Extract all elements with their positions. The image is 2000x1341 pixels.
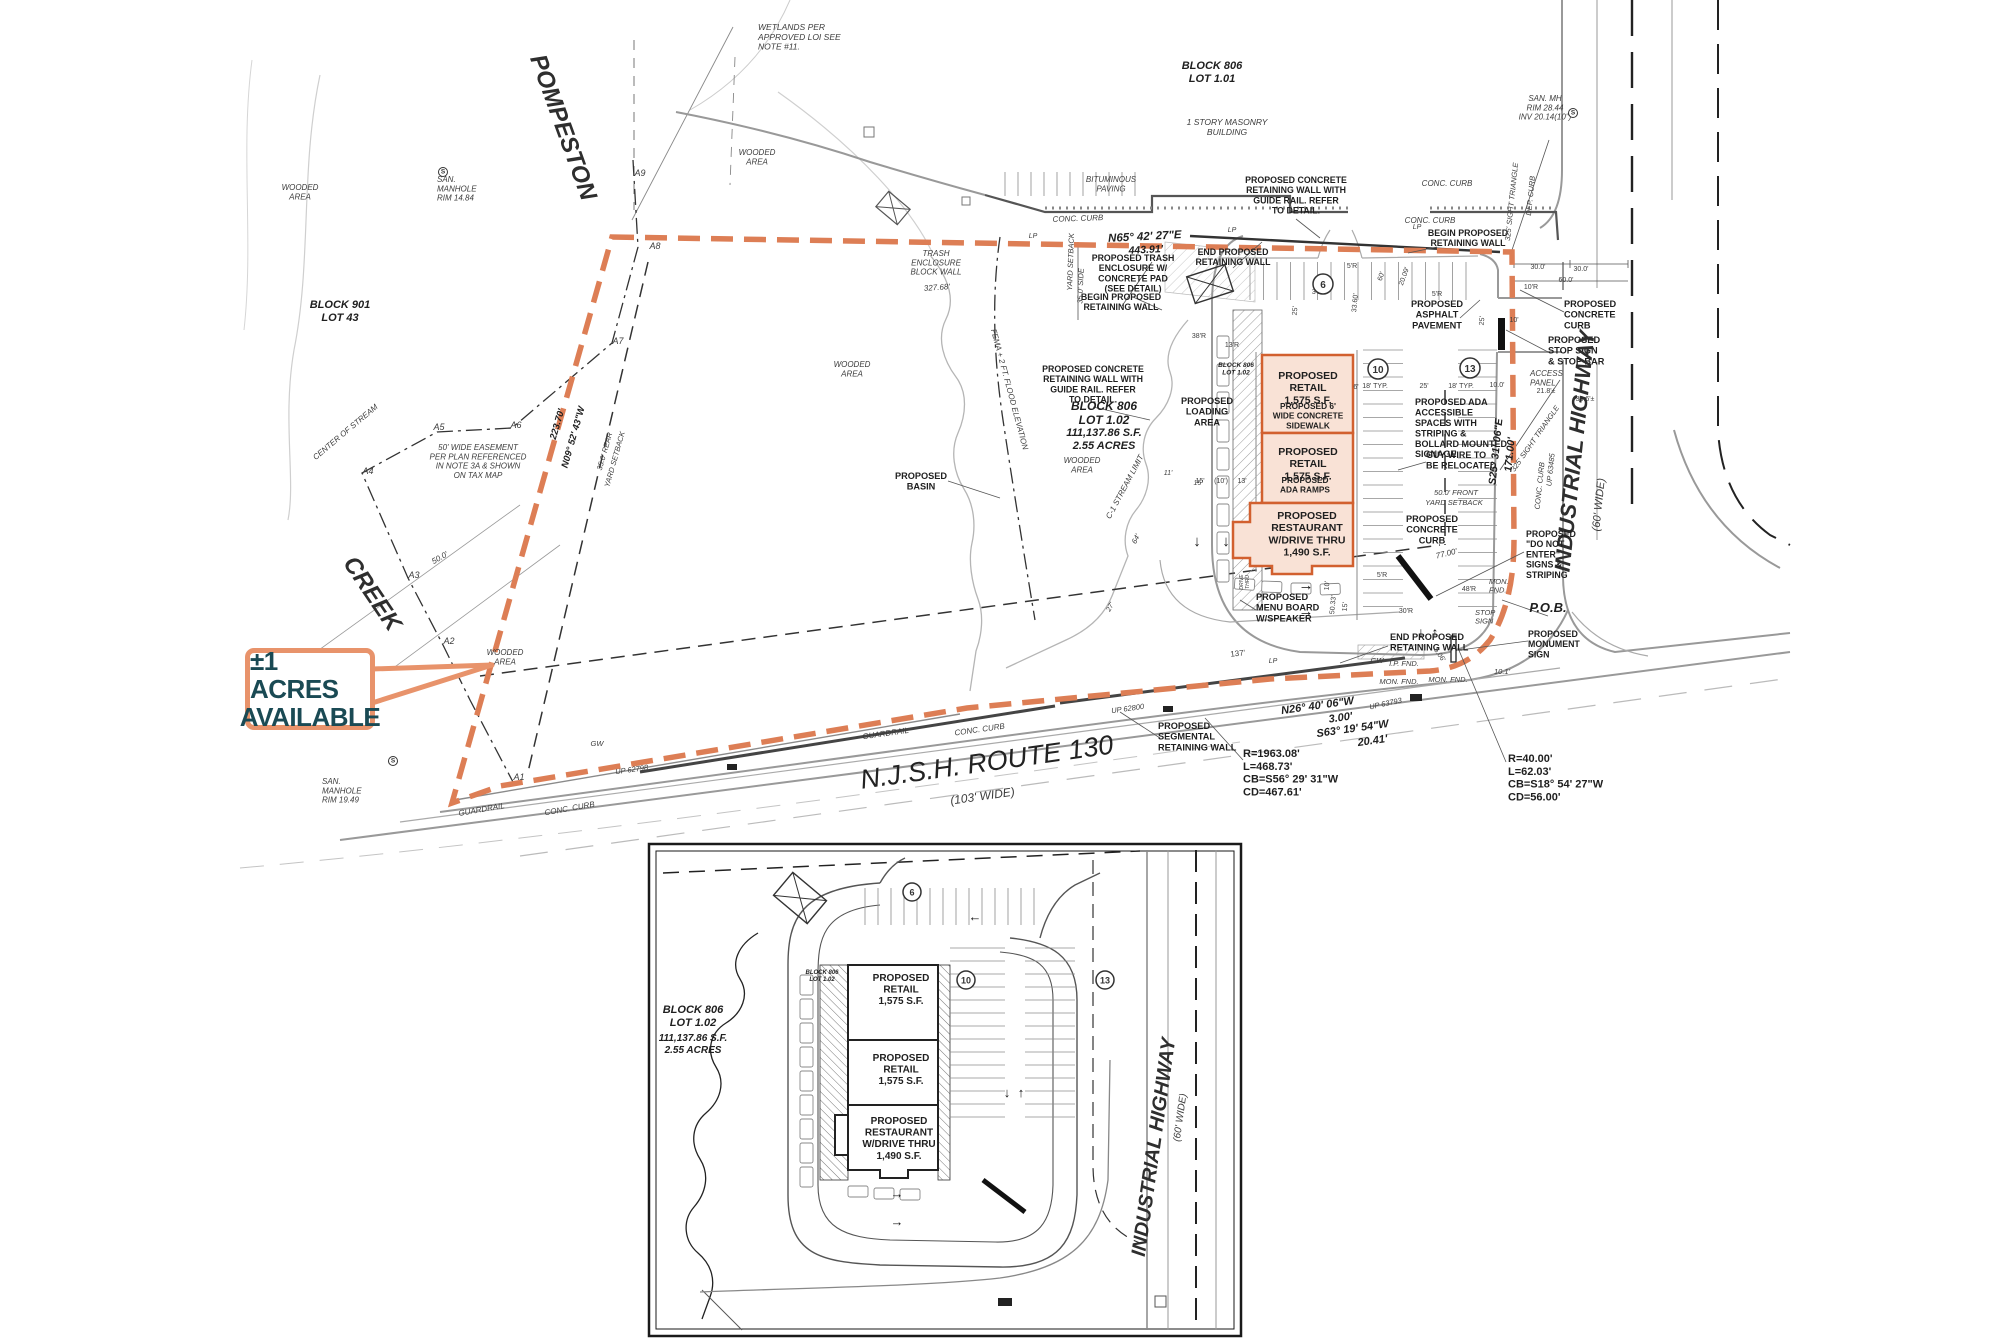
plan-label: MON.FND.	[1489, 577, 1509, 595]
plan-label: BEGIN PROPOSEDRETAINING WALL	[1428, 228, 1508, 248]
flow-arrow: →	[1299, 603, 1314, 620]
flow-arrow: →	[891, 1214, 904, 1229]
plan-label: 50.0' FRONT	[1434, 488, 1479, 497]
plan-label: 77.00'	[1435, 546, 1459, 560]
curve-data-corner: R=40.00'L=62.03'CB=S18° 54' 27"WCD=56.00…	[1508, 753, 1604, 803]
car-stamp	[800, 1143, 813, 1163]
plan-label: 10.1'	[1494, 667, 1511, 676]
flow-arrow: ←	[969, 909, 982, 924]
flow-arrow: ↑	[1432, 624, 1439, 640]
plan-label: (10')	[1214, 478, 1228, 485]
plan-label: 223.70'	[548, 407, 568, 442]
acres-callout-line1: ±1 ACRES	[250, 647, 370, 703]
plan-label: 15'	[1342, 602, 1350, 612]
plan-label: A3	[407, 570, 419, 580]
plan-label: A5	[432, 422, 445, 432]
pob-label: P.O.B.	[1529, 600, 1566, 615]
plan-label: 18' TYP.	[1448, 383, 1474, 390]
plan-label: CENTER OF STREAM	[311, 402, 380, 462]
plan-label: SAN. MHRIM 28.44INV 20.14(10")	[1519, 94, 1572, 122]
plan-label: 60.0'	[1559, 277, 1574, 284]
plan-label: PROPOSEDCONCRETECURB	[1564, 299, 1616, 330]
plan-label: C-1 STREAM LIMIT	[1104, 452, 1146, 520]
plan-label: 25'	[1292, 306, 1300, 316]
plan-label: 10'	[1324, 581, 1332, 591]
plan-label: WOODEDAREA	[739, 148, 776, 166]
svg-text:6: 6	[909, 887, 914, 897]
car-stamp	[1262, 581, 1282, 593]
keyed-circle-10: 10	[1368, 359, 1388, 379]
plan-label: A1	[512, 772, 524, 782]
plan-label: 18' TYP.	[1362, 383, 1388, 390]
plan-label: YARD SETBACK	[1425, 498, 1484, 507]
plan-label: 50' WIDE EASEMENTPER PLAN REFERENCEDIN N…	[430, 443, 527, 480]
plan-label: PROPOSEDADA RAMPS	[1280, 475, 1330, 495]
plan-label: 15'	[1195, 478, 1204, 485]
keyed-circle-13: 13	[1460, 358, 1480, 378]
flow-arrow: ↓	[1418, 624, 1425, 640]
plan-label: BITUMINOUSPAVING	[1086, 175, 1137, 193]
car-stamp	[1217, 504, 1229, 526]
plan-label: 10.0'	[1490, 382, 1505, 389]
plan-label: BLOCK 806LOT 1.02	[1218, 362, 1254, 377]
plan-label: 10'R	[1524, 284, 1538, 291]
plan-label: CONC. CURB	[1422, 179, 1473, 188]
svg-text:13: 13	[1100, 975, 1110, 985]
plan-label: 2.55 ACRES	[1072, 440, 1136, 452]
plan-label: SAN.MANHOLERIM 19.49	[322, 777, 362, 805]
plan-label: A9	[633, 168, 645, 178]
block-901-lot-43-label: BLOCK 901LOT 43	[310, 299, 371, 324]
plan-label: PROPOSED TRASHENCLOSURE W/CONCRETE PAD(S…	[1092, 253, 1175, 294]
plan-label: UP 63793	[1368, 696, 1403, 712]
plan-label: YARD SETBACK	[1065, 232, 1076, 291]
plan-label: DRIVETHRU	[1239, 574, 1251, 590]
plan-label: WETLANDS PERAPPROVED LOI SEENOTE #11.	[757, 22, 841, 52]
plan-label: 20.41'	[1356, 733, 1389, 749]
plan-label: 33.60'	[1351, 293, 1360, 312]
plan-label: WOODEDAREA	[282, 183, 319, 201]
svg-text:S: S	[441, 169, 446, 176]
plan-label: PROPOSEDASPHALTPAVEMENT	[1411, 299, 1463, 330]
plan-label: STOPSIGN	[1475, 608, 1495, 626]
flow-arrow: ↓	[1004, 1085, 1011, 1100]
plan-label: 25'	[1419, 383, 1428, 390]
keyed-circle-S: S	[389, 757, 398, 766]
plan-label: 30.0'	[1531, 264, 1546, 271]
plan-label: 25'	[1479, 316, 1487, 326]
car-stamp	[1217, 560, 1229, 582]
plan-label: A8	[648, 241, 660, 251]
plan-label: PROPOSED CONCRETERETAINING WALL WITHGUID…	[1245, 175, 1347, 216]
site-plan-page: WETLANDS PERAPPROVED LOI SEENOTE #11.POM…	[0, 0, 2000, 1341]
plan-label: 111,137.86 S.F.	[659, 1033, 728, 1044]
bearing-s25: S25° 31' 06"E	[1487, 417, 1506, 485]
flow-arrow: ↓	[1222, 533, 1230, 550]
car-stamp	[800, 1023, 813, 1043]
svg-text:6: 6	[1320, 280, 1326, 291]
retaining-walls	[640, 236, 1500, 772]
plan-label: GUARDRAIL	[862, 726, 909, 741]
creek-label: CREEK	[338, 551, 408, 637]
plan-label: 137'	[1230, 648, 1246, 659]
car-stamp	[800, 999, 813, 1019]
plan-label: FEMA + 2 FT. FLOOD ELEVATION	[989, 328, 1030, 451]
plan-label: (103' WIDE)	[949, 785, 1015, 808]
pompeston-label: POMPESTON	[524, 51, 602, 205]
flow-arrow: ↓	[1193, 533, 1201, 550]
car-stamp	[800, 1167, 813, 1187]
block-806-lot-101-label: BLOCK 806LOT 1.01	[1182, 60, 1243, 85]
plan-label: 5'R	[1347, 263, 1357, 270]
acres-callout-pointer	[372, 665, 492, 703]
plan-label: GW	[1371, 656, 1385, 665]
plan-label: A4	[361, 466, 373, 476]
keyed-circle-10: 10	[957, 971, 975, 989]
svg-text:S: S	[1571, 110, 1576, 117]
plan-label: WOODEDAREA	[834, 360, 871, 378]
plan-label: CONC. CURB	[954, 721, 1006, 737]
plan-label: 38'R	[1192, 333, 1206, 340]
plan-label: WOODEDAREA	[1064, 456, 1101, 474]
car-stamp	[848, 1186, 868, 1197]
plan-label: A6	[509, 420, 521, 430]
plan-label: 13'	[1237, 478, 1246, 485]
plan-label: GUY WIRE TOBE RELOCATED	[1426, 450, 1497, 470]
car-stamp	[800, 1119, 813, 1139]
plan-label: GW	[591, 739, 605, 748]
plan-label: (60' WIDE)	[1590, 477, 1608, 532]
car-stamp	[1217, 448, 1229, 470]
plan-label: GUARDRAIL	[458, 801, 506, 818]
plan-label: 20.09'	[1398, 266, 1411, 286]
plan-label: LP	[1269, 658, 1278, 665]
plan-label: 64'	[1130, 532, 1143, 545]
block-806-lot-102-label: BLOCK 806LOT 1.02	[1071, 399, 1137, 427]
plan-label: A2	[442, 636, 454, 646]
plan-label: 1 STORY MASONRYBUILDING	[1187, 117, 1269, 137]
plan-label: 325' SIGHT TRIANGLE	[1503, 161, 1520, 241]
plan-label: 35.0' SIDE	[1075, 267, 1085, 304]
plan-label: END PROPOSEDRETAINING WALL	[1195, 247, 1271, 267]
plan-label: 48'R	[1462, 586, 1476, 593]
plan-label: 50.0'	[430, 549, 450, 566]
inset-block-806-lot-102-label: BLOCK 806LOT 1.02	[663, 1004, 724, 1029]
keyed-circle-S: S	[439, 168, 448, 177]
svg-text:13: 13	[1464, 364, 1476, 375]
plan-label: I.P. FND.	[1389, 659, 1419, 668]
plan-label: UP 62800	[1111, 702, 1146, 716]
keyed-circle-S: S	[1569, 109, 1578, 118]
car-stamp	[800, 1047, 813, 1067]
plan-label: LP	[1228, 227, 1237, 234]
plan-label: 21.8'±	[1537, 388, 1556, 395]
plan-label: 111,137.86 S.F.	[1066, 427, 1141, 439]
curve-data-route130: R=1963.08'L=468.73'CB=S56° 29' 31"WCD=46…	[1243, 748, 1339, 798]
plan-label: MON. FND.	[1379, 677, 1418, 686]
plan-label: BEGIN PROPOSEDRETAINING WALL	[1081, 292, 1161, 312]
plan-label: PROPOSEDMONUMENTSIGN	[1528, 629, 1580, 659]
plan-label: LP	[1029, 233, 1038, 240]
plan-label: 30.0'	[1574, 266, 1589, 273]
car-stamp	[800, 1095, 813, 1115]
flow-arrow: ↑	[1018, 1085, 1025, 1100]
plan-label: END PROPOSEDRETAINING WALL	[1390, 632, 1469, 653]
car-stamp	[800, 1071, 813, 1091]
plan-label: LP	[1413, 224, 1422, 231]
plan-label: BLOCK 806LOT 1.02	[805, 970, 839, 983]
flow-arrow: →	[1299, 577, 1314, 594]
plan-label: TRASHENCLOSUREBLOCK WALL	[911, 249, 962, 277]
acres-callout-line2: AVAILABLE	[240, 703, 380, 731]
svg-text:10: 10	[1372, 365, 1384, 376]
plan-label: 2.55 ACRES	[664, 1045, 722, 1056]
plan-label: A7	[611, 336, 624, 346]
plan-label: 27'	[1105, 601, 1116, 614]
plan-label: CONC. CURB	[1052, 213, 1104, 224]
site-plan-inset: BLOCK 806LOT 1.02111,137.86 S.F.2.55 ACR…	[649, 844, 1241, 1336]
svg-text:10: 10	[961, 975, 971, 985]
plan-label: 13'R	[1225, 342, 1239, 349]
plan-label: 327.68'	[924, 282, 951, 293]
plan-label: 50.33'	[1329, 595, 1338, 614]
flow-arrow: →	[891, 1186, 904, 1201]
keyed-circle-6: 6	[1313, 274, 1333, 294]
plan-label: 30'R	[1399, 608, 1413, 615]
plan-label: 10'	[1509, 317, 1518, 324]
keyed-circle-13: 13	[1096, 971, 1114, 989]
plan-label: 6'	[1353, 384, 1358, 391]
plan-label: UP 63485	[1544, 452, 1556, 487]
plan-label: PROPOSEDCONCRETECURB	[1406, 514, 1458, 545]
plan-label: SAN.MANHOLERIM 14.84	[437, 175, 477, 203]
plan-label: 11'	[1164, 470, 1173, 477]
svg-text:S: S	[391, 758, 396, 765]
acres-available-callout: ±1 ACRES AVAILABLE	[245, 648, 375, 730]
plan-label: 5'R	[1377, 572, 1387, 579]
proposed-basin-label: PROPOSEDBASIN	[895, 471, 947, 492]
plan-label: 5'R	[1432, 291, 1442, 298]
keyed-circle-6: 6	[903, 883, 921, 901]
plan-label: MON. FND.	[1428, 675, 1467, 684]
plan-label: DEP. CURB	[1524, 175, 1537, 216]
plan-label: ACCESSPANEL	[1529, 369, 1564, 387]
